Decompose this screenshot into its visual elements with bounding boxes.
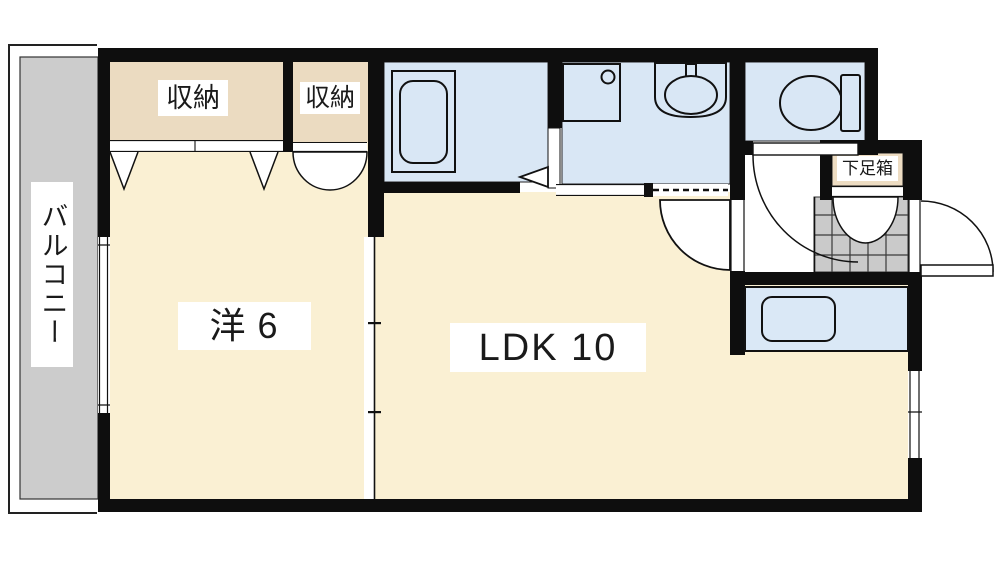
toilet-tank — [841, 75, 860, 131]
wall-toilet-east — [865, 48, 878, 154]
toilet-icon — [780, 75, 860, 131]
window-balcony — [98, 237, 110, 413]
partition-tick-2 — [368, 411, 381, 413]
shoe-box-track — [832, 186, 903, 197]
wall-right-lower — [908, 458, 922, 512]
western-room-label: 洋6 — [178, 302, 311, 350]
closet-left-track — [110, 140, 283, 152]
toilet-bowl — [780, 76, 842, 130]
washbasin-icon — [655, 63, 726, 117]
wall-right-mid — [908, 272, 922, 371]
floor-plan: バルコニー 収納 収納 洋6 LDK 10 下足箱 — [0, 0, 1000, 562]
wall-bath-south — [376, 182, 520, 193]
partition-track — [364, 237, 375, 499]
washroom-door-stop — [644, 183, 653, 197]
wall-closet-bath — [368, 48, 384, 237]
wall-left-upper — [98, 48, 110, 237]
kitchen-sink — [762, 297, 835, 341]
washing-machine-drain — [602, 71, 615, 84]
front-door — [909, 200, 993, 276]
wall-washroom-hall — [730, 48, 745, 200]
kitchen-counter-icon — [745, 287, 908, 351]
washroom-sliding-door — [556, 183, 728, 197]
washroom-door-panel — [556, 184, 645, 196]
front-doorway-frame — [909, 200, 920, 272]
ldk-doorway-gap — [730, 200, 745, 271]
wall-bath-washroom — [548, 48, 562, 128]
front-door-leaf — [921, 265, 993, 276]
toilet-door-leaf — [753, 143, 858, 155]
floor-plan-drawing — [0, 0, 1000, 562]
wall-left-lower — [98, 413, 110, 512]
balcony-label: バルコニー — [31, 182, 73, 367]
window-ldk-east — [908, 371, 922, 458]
hallway-floor — [745, 155, 820, 272]
bath-door-jamb — [548, 128, 560, 188]
wall-genkan-south — [730, 272, 922, 285]
partition-tick-1 — [368, 322, 381, 324]
front-door-swing-arc — [921, 201, 993, 272]
wall-toilet-south-left — [730, 141, 753, 155]
closet-right-label: 収納 — [300, 82, 360, 114]
closet-left-label: 収納 — [158, 80, 228, 116]
washbasin-bowl — [665, 76, 717, 114]
washing-machine-pan-icon — [563, 64, 620, 121]
ldk-label: LDK 10 — [450, 323, 646, 372]
closet-right-track — [293, 142, 367, 152]
wall-top — [98, 48, 878, 62]
shoe-box-label: 下足箱 — [837, 156, 898, 181]
wall-bottom — [98, 499, 922, 512]
bathtub-inner — [400, 81, 447, 163]
bathtub-icon — [392, 71, 455, 172]
wall-right-upper — [903, 140, 922, 200]
wall-closet-divider — [283, 50, 293, 152]
